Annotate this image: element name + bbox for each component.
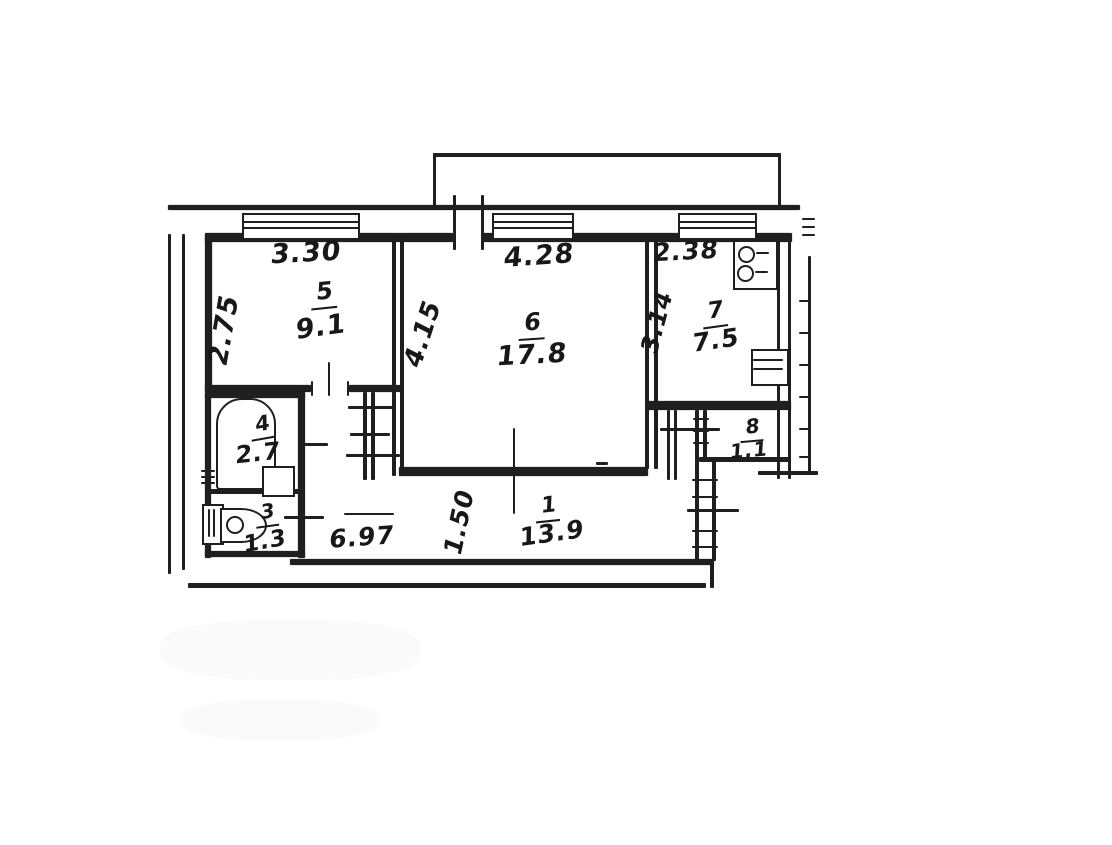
passage-wall — [674, 410, 677, 480]
vent-mark-icon — [802, 234, 815, 236]
hall-number-label: 1 — [536, 494, 561, 519]
bath-block-right-wall — [298, 392, 305, 558]
faucet-icon — [201, 476, 215, 478]
storage-number-label: 8 — [741, 415, 765, 437]
wall-hatch-icon — [799, 456, 811, 458]
room6-area-label: 17.8 — [495, 340, 568, 371]
wall-hatch-icon — [693, 442, 709, 444]
scan-artifact — [180, 700, 380, 740]
wall-hatch-icon — [799, 364, 811, 366]
wall-hatch-icon — [692, 546, 718, 548]
wall-hatch-icon — [799, 332, 811, 334]
room5-area-label: 9.1 — [296, 310, 347, 344]
door-threshold-mark — [660, 428, 720, 431]
room6-width-label: 4.28 — [503, 240, 576, 272]
room5-bottom-wall — [205, 385, 311, 392]
hall-width-label: 6.97 — [328, 522, 396, 552]
dimension-tick — [328, 362, 330, 396]
door-jamb-icon — [347, 381, 349, 396]
entry-corner-wall — [710, 559, 714, 588]
wall-hatch-icon — [799, 396, 811, 398]
outer-top-wall — [168, 205, 800, 210]
kitchen-number-label: 7 — [703, 298, 728, 325]
room5-number-label: 5 — [312, 278, 339, 305]
dimension-tick — [596, 462, 608, 465]
dimension-tick — [513, 428, 515, 514]
vent-mark-icon — [802, 218, 815, 220]
balcony-door-jamb-icon — [453, 195, 456, 250]
kitchen-sink-icon — [751, 349, 789, 386]
wash-basin-icon — [262, 466, 295, 497]
window-icon — [492, 213, 574, 240]
kitchen-bottom-wall — [648, 401, 791, 410]
wc-door-mark — [284, 516, 324, 519]
dimension-tick — [344, 513, 394, 515]
bathroom-area-label: 2.7 — [235, 438, 282, 467]
hall-depth-label: 1.50 — [440, 485, 477, 558]
faucet-icon — [201, 470, 215, 472]
door-jamb-icon — [311, 381, 313, 396]
wall-hatch-icon — [799, 428, 811, 430]
bath-block-top-wall — [205, 392, 305, 398]
faucet-icon — [201, 482, 215, 484]
floor-plan: 3.30 2.75 5 9.1 4.28 4.15 6 17.8 2.38 3.… — [0, 0, 1112, 845]
wall-hatch-icon — [687, 509, 739, 512]
left-outer-wall — [168, 234, 171, 574]
balcony-left-wall — [433, 153, 436, 208]
hall-area-label: 13.9 — [519, 516, 584, 550]
balcony-top-wall — [433, 153, 781, 157]
wall-hatch-icon — [692, 496, 718, 498]
balcony-door-jamb-icon — [481, 195, 484, 250]
storage-area-label: 1.1 — [729, 438, 769, 462]
stove-icon — [733, 240, 778, 290]
wall-hatch-icon — [692, 479, 718, 481]
passage-wall — [667, 410, 670, 480]
vent-mark-icon — [802, 226, 815, 228]
scanned-page: 3.30 2.75 5 9.1 4.28 4.15 6 17.8 2.38 3.… — [0, 0, 1112, 845]
kitchen-area-label: 7.5 — [692, 324, 739, 356]
wc-number-label: 3 — [256, 499, 279, 522]
wall-hatch-icon — [693, 418, 709, 420]
room6-depth-label: 4.15 — [401, 296, 446, 373]
hall-bottom-wall — [290, 559, 714, 565]
bathroom-door-mark — [300, 443, 328, 446]
lower-outer-wall — [188, 583, 706, 588]
scan-artifact — [160, 620, 420, 680]
kitchen-width-label: 2.38 — [652, 237, 720, 266]
room6-number-label: 6 — [519, 309, 547, 335]
left-outer-wall — [182, 234, 185, 570]
room5-width-label: 3.30 — [269, 238, 342, 269]
room6-bottom-wall — [399, 467, 648, 476]
wall-hatch-icon — [692, 530, 718, 532]
room5-room6-wall — [392, 234, 396, 476]
room6-right-wall — [645, 239, 649, 469]
door-threshold-mark — [348, 406, 396, 409]
wall-hatch-icon — [693, 430, 709, 432]
bathroom-number-label: 4 — [251, 411, 275, 436]
wall-hatch-icon — [799, 300, 811, 302]
door-threshold-mark — [346, 454, 400, 457]
balcony-right-wall — [778, 153, 781, 208]
kitchen-depth-label: 3.14 — [638, 287, 677, 358]
door-threshold-mark — [350, 433, 390, 436]
